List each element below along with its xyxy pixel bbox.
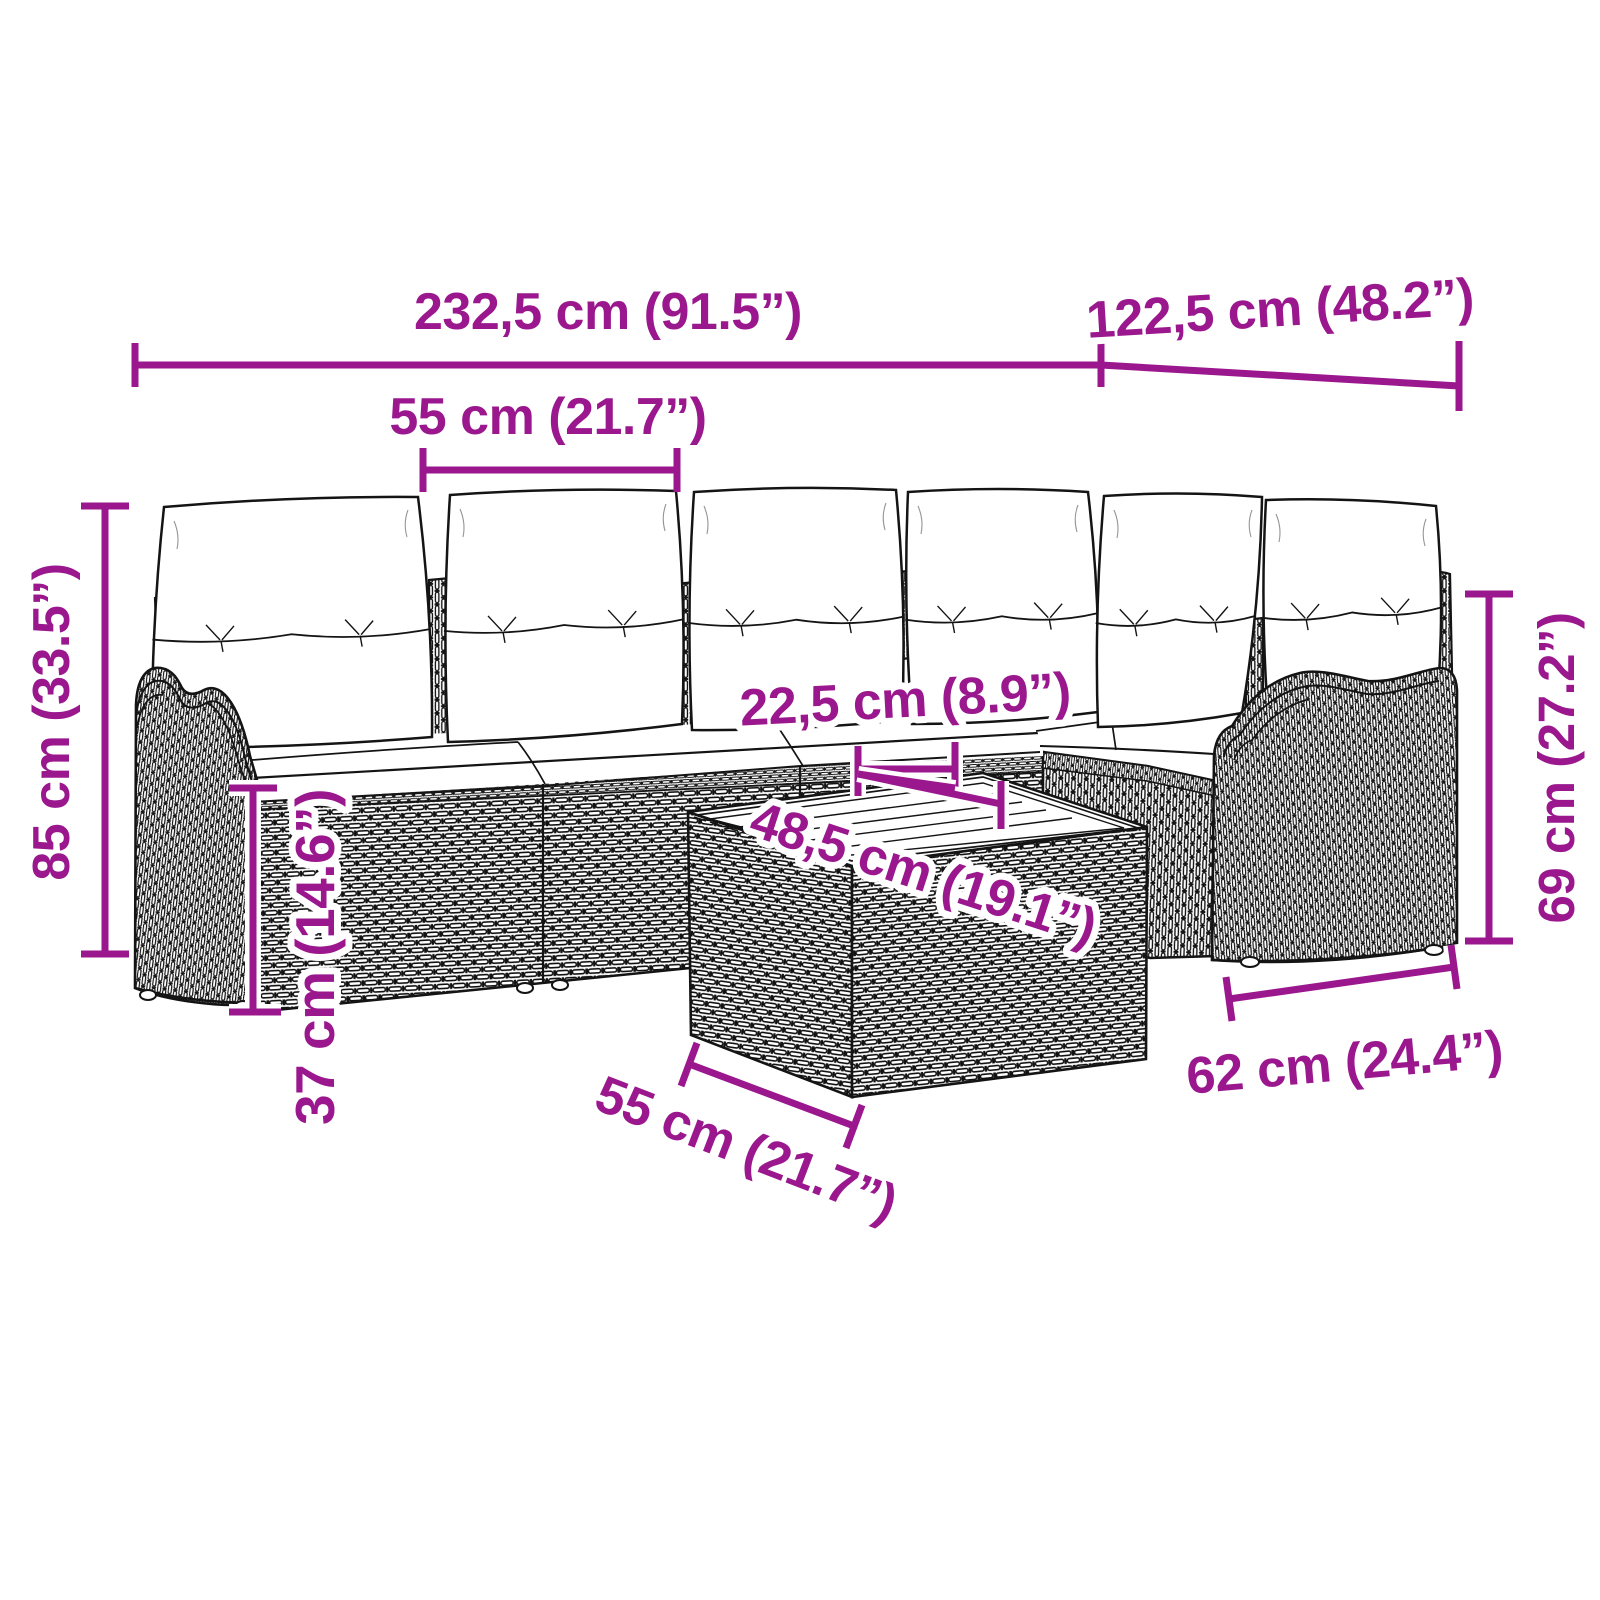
svg-text:85 cm (33.5”): 85 cm (33.5”)	[23, 563, 81, 880]
svg-text:232,5 cm (91.5”): 232,5 cm (91.5”)	[414, 283, 802, 341]
svg-text:69 cm (27.2”): 69 cm (27.2”)	[1528, 612, 1585, 923]
svg-text:37 cm (14.6”): 37 cm (14.6”)	[284, 789, 346, 1125]
svg-text:55 cm (21.7”): 55 cm (21.7”)	[389, 388, 706, 446]
